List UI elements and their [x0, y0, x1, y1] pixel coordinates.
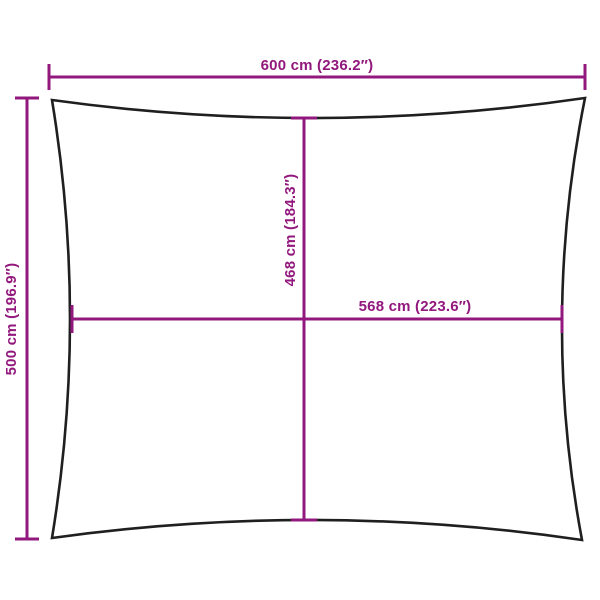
top-width-label: 600 cm (236.2″)	[261, 57, 374, 74]
center-horizontal-dimension	[72, 305, 562, 333]
dimension-diagram-canvas: 600 cm (236.2″) 500 cm (196.9″) 468 cm (…	[0, 0, 600, 600]
center-horizontal-label: 568 cm (223.6″)	[359, 298, 472, 315]
product-dimension-diagram: 600 cm (236.2″) 500 cm (196.9″) 468 cm (…	[0, 0, 600, 600]
left-height-label: 500 cm (196.9″)	[3, 263, 20, 376]
dimension-lines	[15, 64, 585, 539]
center-vertical-label: 468 cm (184.3″)	[282, 174, 299, 287]
